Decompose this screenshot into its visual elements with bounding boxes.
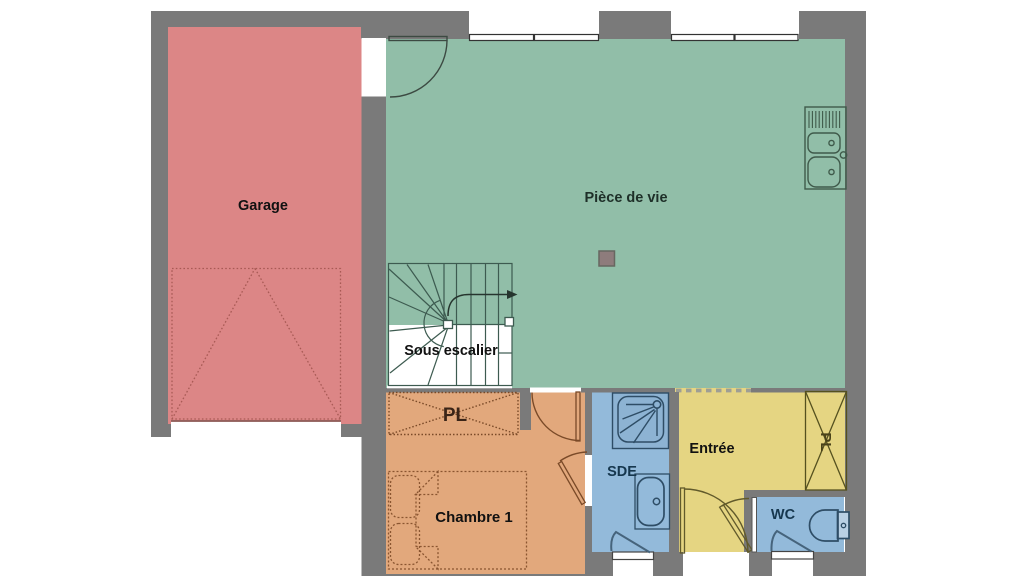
svg-text:SDE: SDE (607, 464, 637, 480)
svg-text:Entrée: Entrée (689, 441, 734, 457)
svg-text:Garage: Garage (238, 198, 288, 214)
svg-text:PL: PL (443, 405, 468, 426)
svg-text:Chambre 1: Chambre 1 (435, 509, 513, 526)
svg-text:Sous escalier: Sous escalier (404, 343, 498, 359)
svg-text:Pièce de vie: Pièce de vie (584, 190, 667, 206)
svg-text:WC: WC (771, 507, 796, 523)
svg-text:PL: PL (817, 432, 834, 451)
